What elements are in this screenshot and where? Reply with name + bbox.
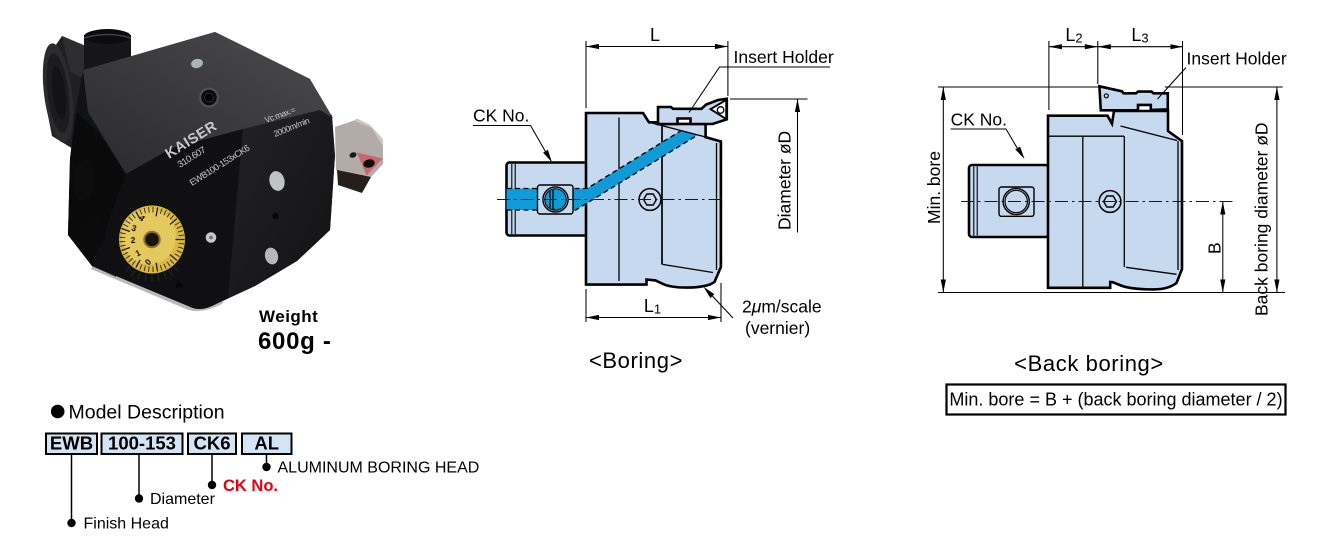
svg-text:CK No.: CK No. [473, 106, 529, 126]
svg-text:CK6: CK6 [193, 433, 230, 454]
svg-text:Diameter: Diameter [150, 491, 216, 508]
svg-text:600g -: 600g - [258, 328, 332, 355]
svg-text:Finish Head: Finish Head [84, 516, 169, 533]
svg-text:100-153: 100-153 [108, 433, 176, 454]
svg-text:ALUMINUM BORING HEAD: ALUMINUM BORING HEAD [278, 460, 480, 477]
svg-text:EWB: EWB [50, 433, 93, 454]
svg-text:<Boring>: <Boring> [589, 348, 683, 373]
svg-text:L: L [650, 25, 660, 45]
svg-text:Min. bore = B + (back boring d: Min. bore = B + (back boring diameter / … [949, 390, 1282, 410]
svg-text:Insert Holder: Insert Holder [734, 47, 834, 67]
svg-text:Model Description: Model Description [69, 402, 225, 424]
svg-text:(vernier): (vernier) [745, 318, 810, 338]
svg-text:CK No.: CK No. [223, 477, 278, 495]
svg-text:L3: L3 [1131, 25, 1148, 46]
svg-text:2: 2 [130, 235, 136, 245]
svg-text:<Back boring>: <Back boring> [1014, 351, 1164, 376]
svg-text:2μm/scale: 2μm/scale [742, 297, 822, 317]
svg-text:Min. bore: Min. bore [924, 151, 944, 224]
svg-text:Weight: Weight [259, 307, 318, 326]
svg-text:CK No.: CK No. [951, 110, 1007, 130]
svg-text:L2: L2 [1065, 25, 1082, 46]
svg-text:B: B [1205, 242, 1225, 254]
svg-text:AL: AL [254, 433, 279, 454]
svg-text:Back boring diameter øD: Back boring diameter øD [1252, 122, 1272, 316]
svg-text:L1: L1 [644, 296, 661, 317]
svg-text:Insert Holder: Insert Holder [1187, 49, 1287, 69]
svg-text:Diameter øD: Diameter øD [775, 131, 795, 230]
